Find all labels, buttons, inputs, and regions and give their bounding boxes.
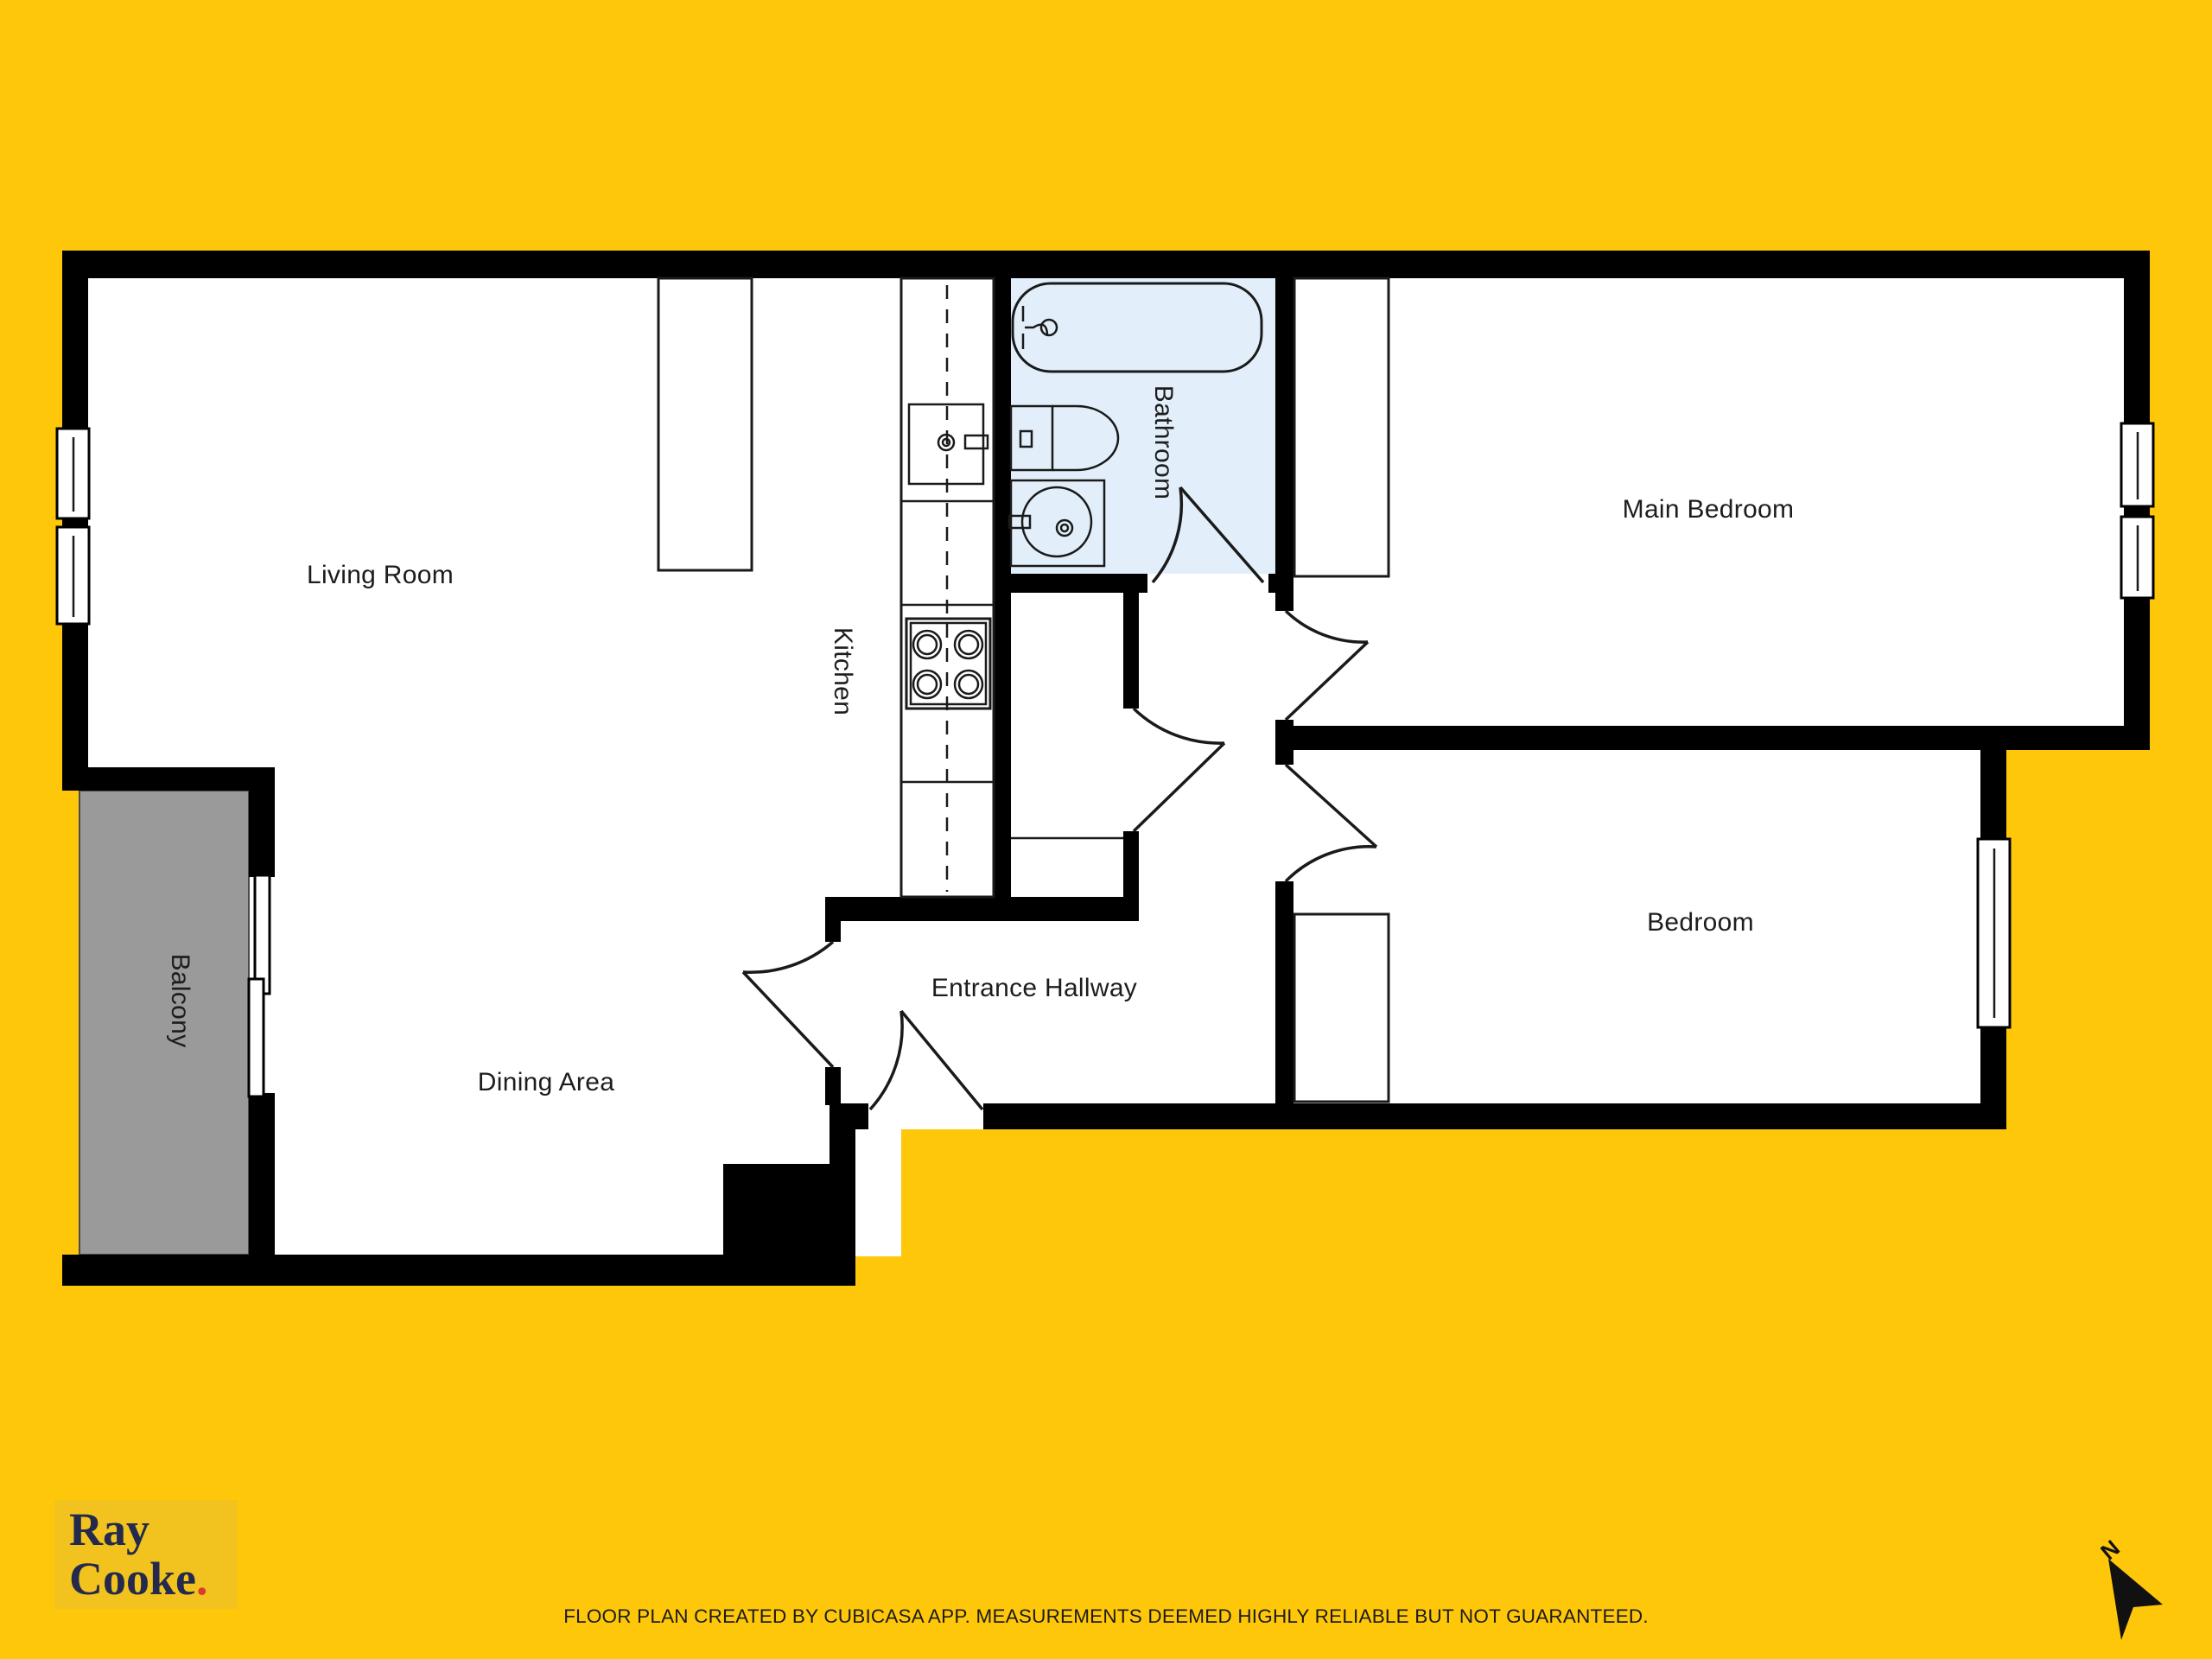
wall-hall-bedroom-lower	[1275, 881, 1294, 1103]
kitchen-label: Kitchen	[829, 627, 855, 715]
hallway-floor	[841, 919, 1277, 1105]
bedroom-label: Bedroom	[1647, 910, 1754, 936]
main-bedroom-label: Main Bedroom	[1623, 497, 1795, 523]
wall-bedroom-bottom	[1277, 1103, 2006, 1129]
bedroom-wardrobe	[1294, 914, 1389, 1102]
wall-closet-right-lower	[1123, 831, 1139, 897]
main-bedroom-wardrobe	[1294, 278, 1389, 576]
north-arrow: N	[2095, 1535, 2163, 1640]
disclaimer-text: FLOOR PLAN CREATED BY CUBICASA APP. MEAS…	[563, 1605, 1649, 1628]
living-room-window-1	[57, 429, 89, 518]
wall-top	[62, 251, 2150, 278]
wall-hallway-left-upper	[825, 921, 841, 942]
closet-floor	[1011, 591, 1123, 899]
wall-balcony-right-lower	[249, 1093, 275, 1257]
entrance-hallway-label: Entrance Hallway	[931, 976, 1137, 1001]
wall-kitchen-bathroom	[994, 278, 1011, 575]
living-room-counter	[658, 278, 752, 570]
bathroom-label: Bathroom	[1150, 385, 1176, 499]
wall-closet-left	[994, 575, 1011, 897]
agency-logo: Ray Cooke.	[54, 1500, 238, 1609]
logo-line-1: Ray	[69, 1505, 238, 1554]
wall-hallway-top	[825, 897, 1139, 921]
wall-closet-right-upper	[1123, 593, 1139, 709]
page-background: N Living Room Dining Area Kitchen Bathro…	[0, 0, 2212, 1659]
wall-left	[62, 251, 88, 791]
wall-balcony-right-upper	[249, 767, 275, 877]
logo-dot: .	[196, 1553, 208, 1605]
wall-hallway-left-lower	[825, 1067, 841, 1105]
bedroom-window	[1978, 839, 2010, 1027]
kitchen-fixtures	[901, 278, 994, 897]
wall-main-bedroom-bottom	[1277, 726, 2150, 750]
north-arrow-icon	[2108, 1559, 2163, 1640]
logo-line-2: Cooke.	[69, 1554, 238, 1604]
balcony-label: Balcony	[167, 954, 193, 1048]
wall-step-riser	[829, 1128, 855, 1169]
wall-step-block	[723, 1164, 855, 1286]
north-label: N	[2095, 1535, 2125, 1565]
bedroom-floor	[1294, 748, 1980, 1105]
living-room-label: Living Room	[307, 563, 454, 588]
wall-bathroom-mainbedroom	[1275, 278, 1294, 611]
floor-plan-canvas: N	[0, 0, 2212, 1659]
main-bedroom-window-1	[2121, 423, 2153, 506]
main-bedroom-window-2	[2121, 517, 2153, 598]
living-room-window-2	[57, 527, 89, 624]
wall-balcony-top	[62, 767, 275, 791]
balcony-floor	[79, 791, 249, 1255]
wall-hall-bedrooms-mid	[1275, 720, 1294, 765]
dining-area-label: Dining Area	[478, 1070, 614, 1096]
